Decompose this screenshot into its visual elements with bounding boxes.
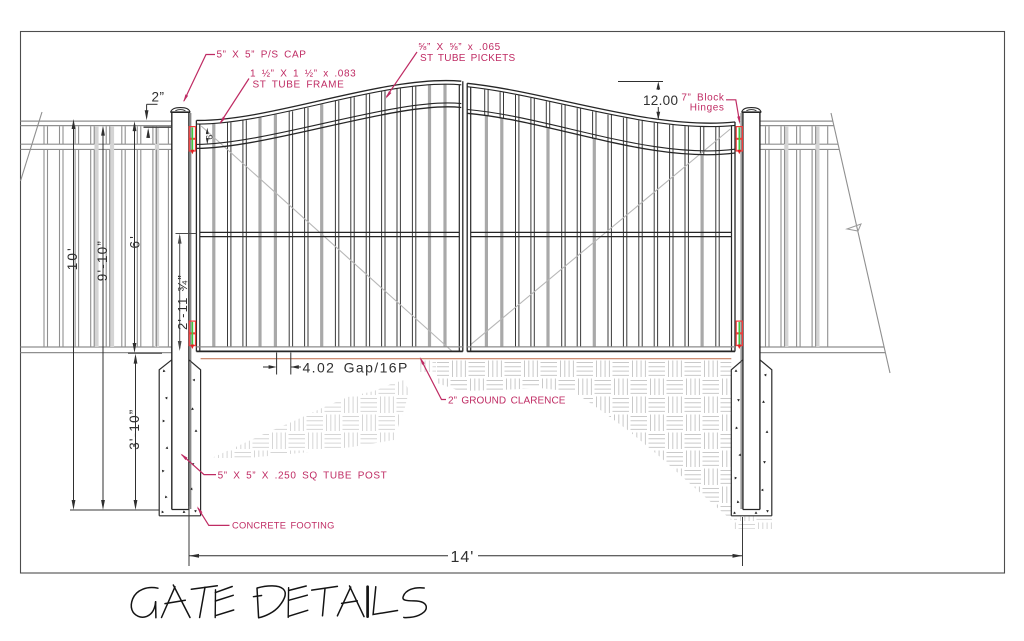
svg-text:⅝” X ⅝” x .065: ⅝” X ⅝” x .065 bbox=[418, 42, 501, 53]
svg-text:12.00: 12.00 bbox=[643, 93, 678, 108]
svg-text:9'-10”: 9'-10” bbox=[95, 240, 110, 281]
svg-text:2” GROUND CLARENCE: 2” GROUND CLARENCE bbox=[448, 395, 566, 406]
svg-text:4.02 Gap/16P: 4.02 Gap/16P bbox=[303, 359, 409, 375]
svg-text:Hinges: Hinges bbox=[690, 103, 725, 114]
svg-text:2”: 2” bbox=[152, 90, 165, 105]
svg-text:2'-11 ¾”: 2'-11 ¾” bbox=[175, 274, 190, 330]
svg-text:10': 10' bbox=[65, 246, 80, 270]
svg-text:6': 6' bbox=[127, 234, 142, 249]
svg-text:5” X 5” X .250 SQ TUBE POST: 5” X 5” X .250 SQ TUBE POST bbox=[218, 470, 388, 481]
svg-text:CONCRETE FOOTING: CONCRETE FOOTING bbox=[232, 521, 335, 531]
svg-text:14': 14' bbox=[451, 549, 475, 566]
svg-text:ST TUBE PICKETS: ST TUBE PICKETS bbox=[420, 53, 516, 64]
svg-text:3'-10”: 3'-10” bbox=[127, 409, 142, 450]
svg-text:ST TUBE FRAME: ST TUBE FRAME bbox=[253, 79, 345, 90]
svg-text:5” X 5” P/S CAP: 5” X 5” P/S CAP bbox=[217, 50, 307, 61]
svg-text:1 ½” X 1 ½” x .083: 1 ½” X 1 ½” x .083 bbox=[250, 69, 356, 80]
